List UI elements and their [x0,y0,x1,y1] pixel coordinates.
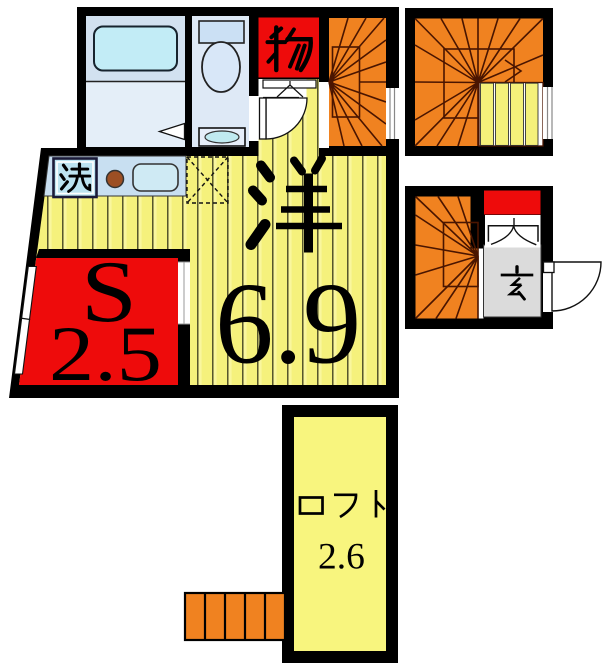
svg-text:6.9: 6.9 [215,260,361,389]
svg-text:2.6: 2.6 [318,537,365,578]
svg-text:2.5: 2.5 [49,310,162,397]
